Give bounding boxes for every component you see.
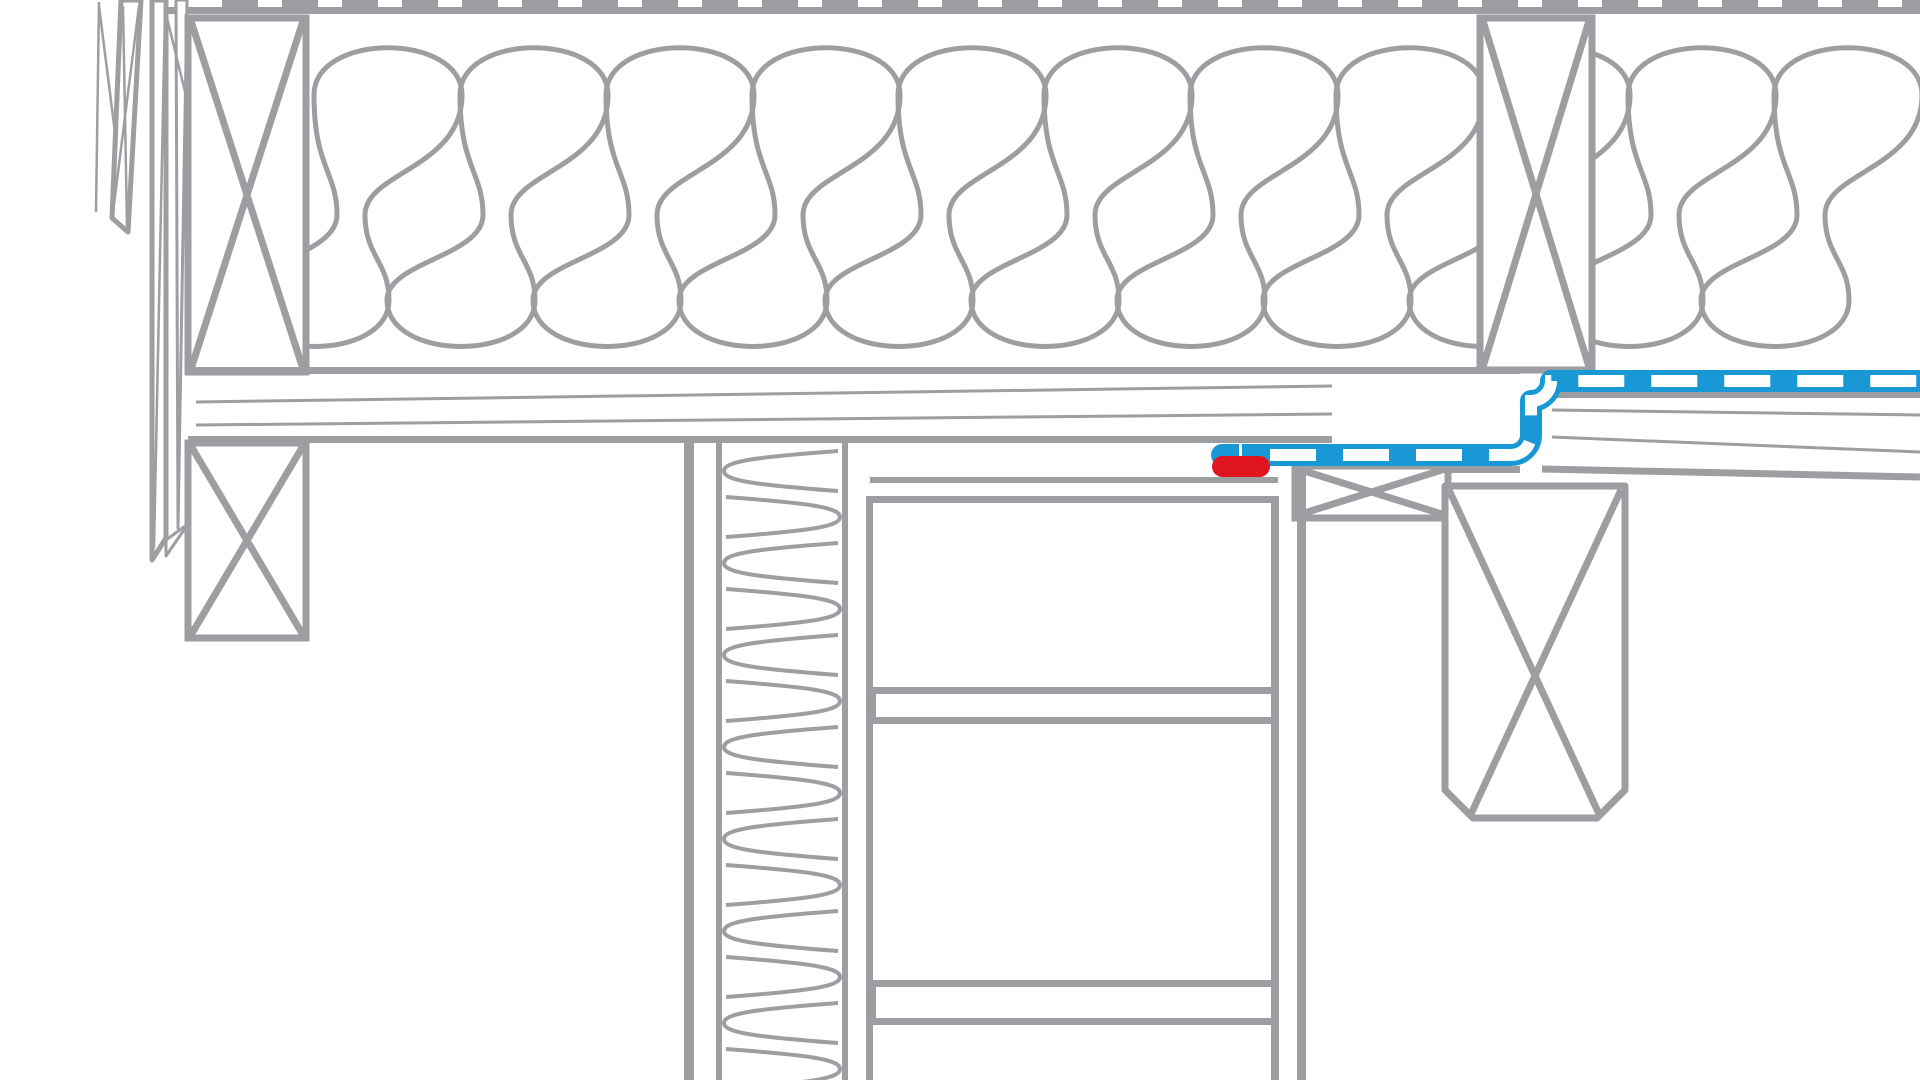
batten-tab (1362, 0, 1398, 8)
batten-tab (1302, 0, 1338, 8)
service-strip-loop (724, 635, 838, 675)
cladding-board (870, 721, 1275, 984)
batten-tab (402, 0, 438, 8)
batten-tab (522, 0, 558, 8)
service-strip-loop (724, 911, 838, 951)
batten-tab (1122, 0, 1158, 8)
cladding-board (870, 500, 1275, 691)
service-strip-loop (726, 957, 840, 997)
batten-bar (157, 7, 1920, 14)
ceiling-board-bottom-edge (188, 436, 1332, 443)
service-strip-loop (726, 681, 840, 721)
wall-top-line (870, 477, 1278, 483)
stud-rail (1297, 466, 1306, 1080)
batten-tab (282, 0, 318, 8)
batten-tab (882, 0, 918, 8)
construction-detail-diagram (0, 0, 1920, 1080)
insulation-band-group (241, 48, 1920, 347)
batten-tab (1902, 0, 1920, 8)
service-strip-loop (726, 865, 840, 905)
ceiling-board-grain-1 (196, 386, 1332, 402)
insulation-loop (1117, 48, 1338, 347)
batten-tab (342, 0, 378, 8)
interior-lining-line (684, 443, 694, 1080)
batten-tab (1482, 0, 1518, 8)
eaves-board-grain-2 (1552, 437, 1920, 452)
batten-tab (1842, 0, 1878, 8)
ceiling-board-grain-2 (196, 414, 1332, 425)
batten-tab (1242, 0, 1278, 8)
insulation-loop (387, 48, 608, 347)
service-strip-loop (726, 497, 840, 537)
seal-group (1212, 456, 1270, 477)
batten-tab (222, 0, 258, 8)
ledge-line (1444, 466, 1520, 473)
cladding-boards-group (870, 500, 1275, 1080)
batten-tab (642, 0, 678, 8)
roof-battens-group (157, 0, 1920, 14)
grain-lines-group (196, 386, 1920, 477)
service-strip-loop (724, 819, 838, 859)
batten-tab (702, 0, 738, 8)
service-strip-group (724, 451, 840, 1080)
batten-tab (1062, 0, 1098, 8)
eaves-board-bottom-edge (1542, 469, 1920, 477)
service-strip-border-left (716, 443, 722, 1080)
batten-tab (1602, 0, 1638, 8)
detail-drawing-canvas (0, 0, 1920, 1080)
service-strip-loop (726, 773, 840, 813)
batten-tab (1002, 0, 1038, 8)
batten-tab (1542, 0, 1578, 8)
cladding-board (870, 1022, 1275, 1080)
verge-slats-group (96, 0, 190, 560)
eaves-board-grain-1 (1552, 410, 1920, 415)
batten-tab (1422, 0, 1458, 8)
batten-tab (822, 0, 858, 8)
insulation-loop (1263, 48, 1484, 347)
service-strip-loop (726, 1049, 840, 1080)
service-strip-loop (726, 589, 840, 629)
insulation-loop (533, 48, 754, 347)
airtight-membrane-end-notch (1239, 444, 1242, 456)
batten-tab (1662, 0, 1698, 8)
batten-tab (1782, 0, 1818, 8)
batten-tab (1182, 0, 1218, 8)
batten-tab (762, 0, 798, 8)
batten-tab (582, 0, 618, 8)
insulation-loop (971, 48, 1192, 347)
eaves-board-top-edge (1542, 392, 1920, 398)
insulation-loop (1701, 48, 1920, 347)
service-strip-loop (724, 451, 838, 491)
batten-tab (942, 0, 978, 8)
seal-tape (1212, 456, 1270, 477)
insulation-loop (679, 48, 900, 347)
service-strip-loop (724, 1003, 838, 1043)
insulation-loop (825, 48, 1046, 347)
service-strip-loop (724, 727, 838, 767)
batten-tab (462, 0, 498, 8)
service-strip-loop (724, 543, 838, 583)
service-strip-border-right (842, 443, 848, 1080)
insulation-band-bottom-line (186, 367, 1520, 374)
batten-tab (1722, 0, 1758, 8)
verge-edge-line (96, 2, 99, 212)
